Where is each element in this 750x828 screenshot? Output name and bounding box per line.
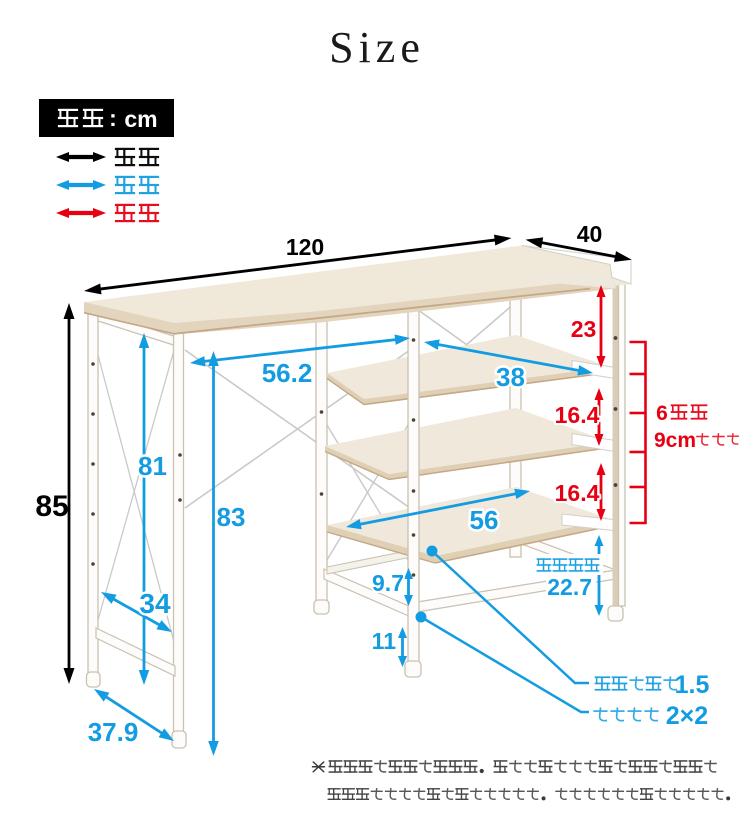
svg-text:2×2: 2×2 <box>666 702 708 730</box>
svg-text:85: 85 <box>35 490 68 523</box>
svg-text:120: 120 <box>286 234 324 260</box>
svg-text:23: 23 <box>571 316 597 342</box>
svg-text:9cm: 9cm <box>654 429 696 452</box>
svg-text:16.4: 16.4 <box>555 480 600 506</box>
svg-text:6: 6 <box>656 402 668 425</box>
svg-text:38: 38 <box>496 362 525 392</box>
svg-text:16.4: 16.4 <box>555 402 600 428</box>
svg-text:11: 11 <box>372 628 397 654</box>
svg-text:56: 56 <box>470 505 499 535</box>
svg-text:81: 81 <box>138 451 167 481</box>
svg-text::: : <box>109 105 117 131</box>
svg-text:40: 40 <box>577 221 603 247</box>
svg-text:22.7: 22.7 <box>547 574 592 600</box>
svg-text:37.9: 37.9 <box>88 717 139 747</box>
svg-text:34: 34 <box>139 588 171 619</box>
svg-text:1.5: 1.5 <box>675 671 710 699</box>
svg-text:Size: Size <box>329 23 425 72</box>
svg-text:83: 83 <box>217 502 246 532</box>
svg-text:cm: cm <box>124 106 157 132</box>
svg-text:9.7: 9.7 <box>372 570 404 596</box>
svg-text:56.2: 56.2 <box>262 358 313 388</box>
